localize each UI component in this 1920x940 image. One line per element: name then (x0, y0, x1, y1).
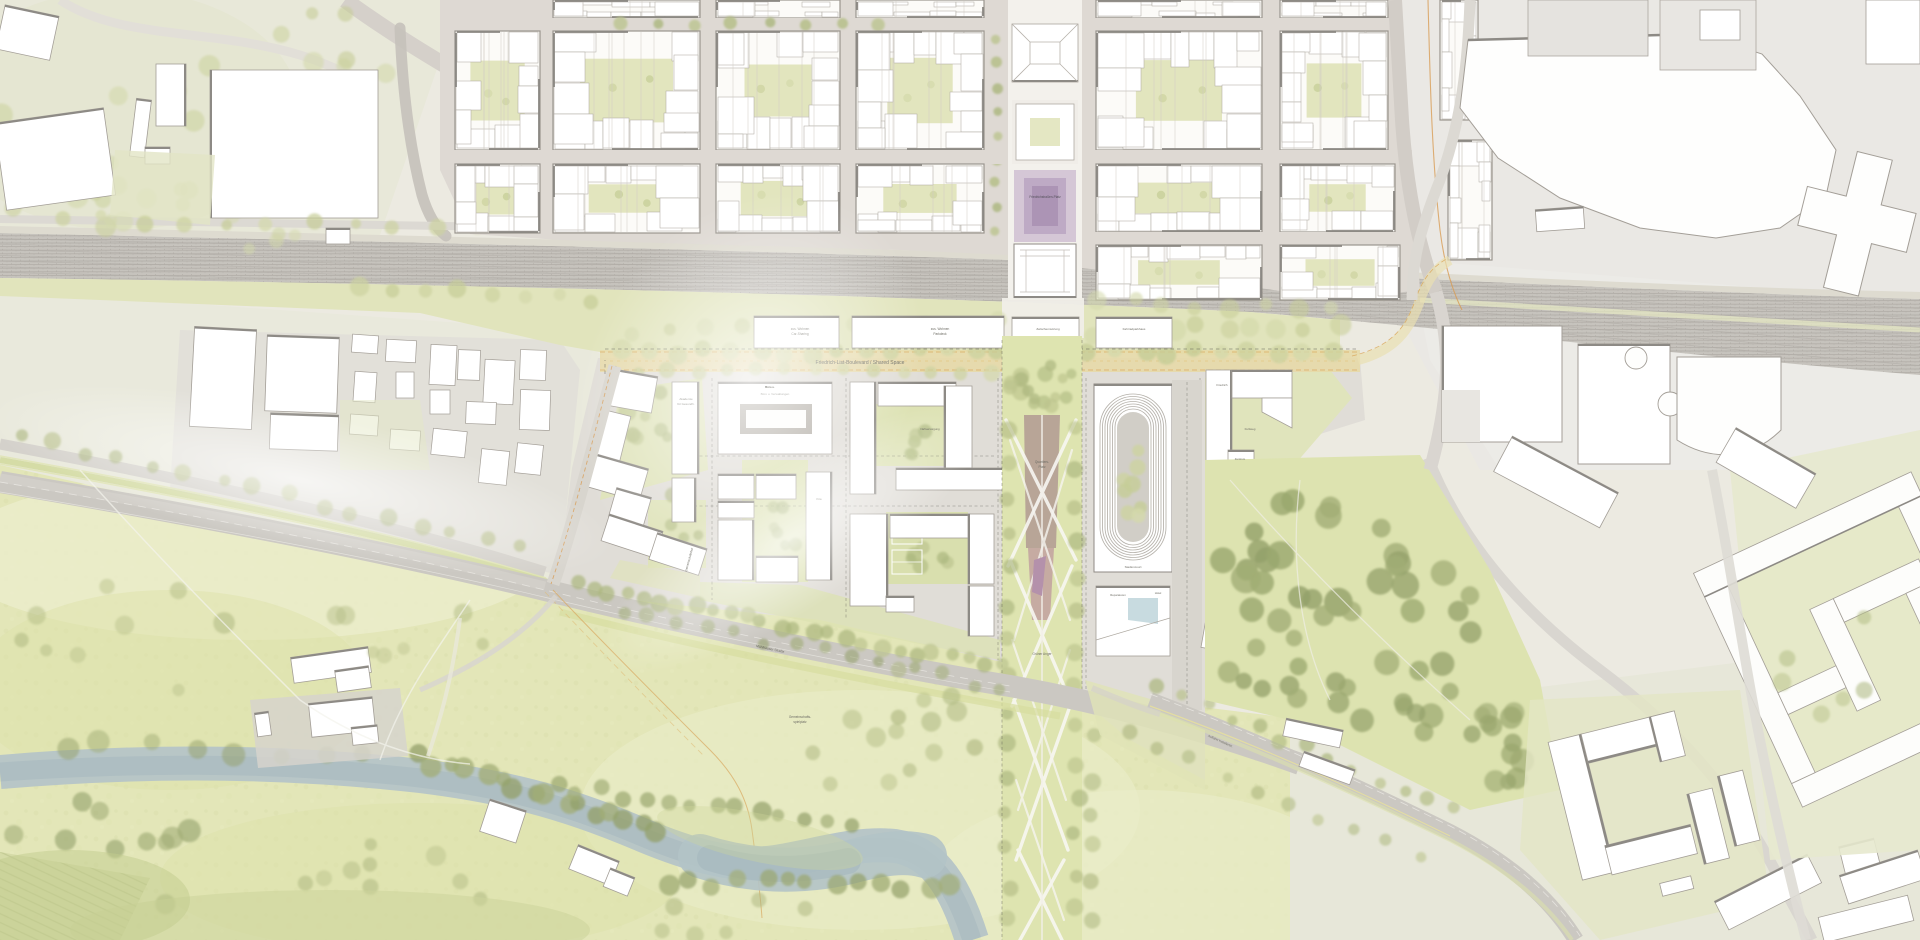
svg-text:Zwischennutzung: Zwischennutzung (1036, 327, 1060, 331)
svg-text:Reparaturen: Reparaturen (1110, 593, 1126, 597)
svg-text:Nahversorgung: Nahversorgung (920, 427, 940, 431)
svg-text:Hotel: Hotel (1155, 591, 1162, 595)
svg-text:Fußweg: Fußweg (1245, 427, 1256, 431)
svg-text:Parkdeck: Parkdeck (933, 332, 947, 336)
svg-text:Friedrich: Friedrich (1217, 383, 1228, 387)
svg-text:spielplatz: spielplatz (793, 720, 807, 724)
svg-text:zus. Wohnen: zus. Wohnen (931, 327, 950, 331)
svg-text:Stadioncourt: Stadioncourt (1125, 565, 1142, 569)
svg-text:Grüner Anger: Grüner Anger (1032, 652, 1052, 656)
svg-text:Friedrichstraßen-Platz: Friedrichstraßen-Platz (1029, 195, 1061, 199)
svg-text:Büro u.: Büro u. (765, 385, 775, 389)
svg-text:Fahrradparkhaus: Fahrradparkhaus (1123, 327, 1146, 331)
svg-text:Zentrum: Zentrum (1235, 457, 1246, 461)
svg-text:Platz: Platz (1038, 465, 1045, 469)
svg-text:Quartiers-: Quartiers- (1035, 460, 1049, 464)
svg-text:Gemeinschafts-: Gemeinschafts- (789, 715, 811, 719)
